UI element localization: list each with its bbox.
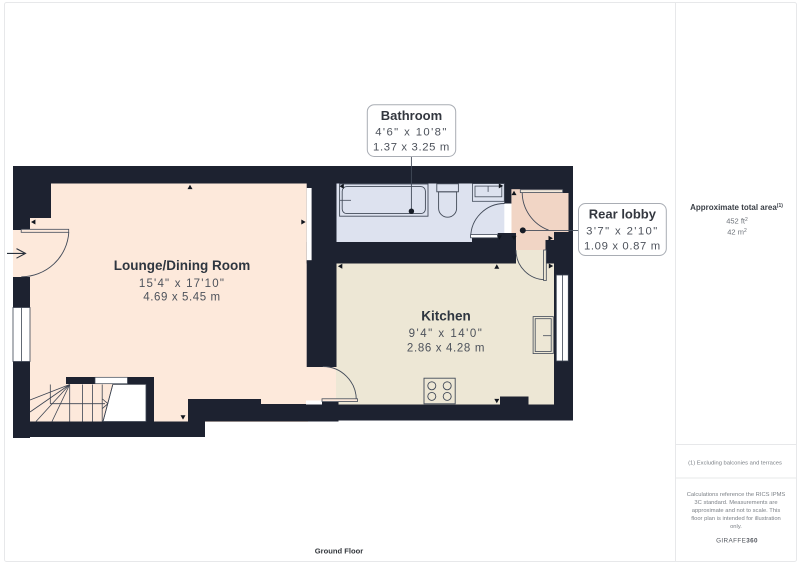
svg-text:Bathroom: Bathroom [381,108,442,123]
svg-text:Lounge/Dining Room: Lounge/Dining Room [114,258,250,273]
svg-text:3C standard. Measurements are: 3C standard. Measurements are [694,500,777,506]
svg-text:GIRAFFE360: GIRAFFE360 [716,538,758,545]
svg-text:1.37 x 3.25 m: 1.37 x 3.25 m [373,142,450,154]
svg-text:2.86 x 4.28 m: 2.86 x 4.28 m [407,342,485,354]
svg-text:9'4" x 14'0": 9'4" x 14'0" [409,328,484,340]
svg-text:4.69 x 5.45 m: 4.69 x 5.45 m [143,291,220,303]
svg-text:15'4" x 17'10": 15'4" x 17'10" [139,278,225,290]
svg-text:1.09 x 0.87 m: 1.09 x 0.87 m [584,241,661,253]
svg-text:Kitchen: Kitchen [421,309,471,324]
svg-text:Rear lobby: Rear lobby [589,207,657,222]
svg-text:Ground Floor: Ground Floor [315,547,364,556]
svg-text:approximate and not to scale.: approximate and not to scale. This [692,508,781,514]
svg-text:4'6" x 10'8": 4'6" x 10'8" [375,127,447,139]
svg-text:only.: only. [730,524,742,530]
svg-text:Calculations reference the RIC: Calculations reference the RICS IPMS [687,492,786,498]
svg-text:3'7" x 2'10": 3'7" x 2'10" [586,226,658,238]
svg-text:Approximate total area(1): Approximate total area(1) [690,203,783,212]
svg-text:(1) Excluding balconies and te: (1) Excluding balconies and terraces [688,461,782,467]
svg-text:452 ft2: 452 ft2 [726,217,748,226]
svg-text:floor plan is intended for ill: floor plan is intended for illustration [691,516,781,522]
